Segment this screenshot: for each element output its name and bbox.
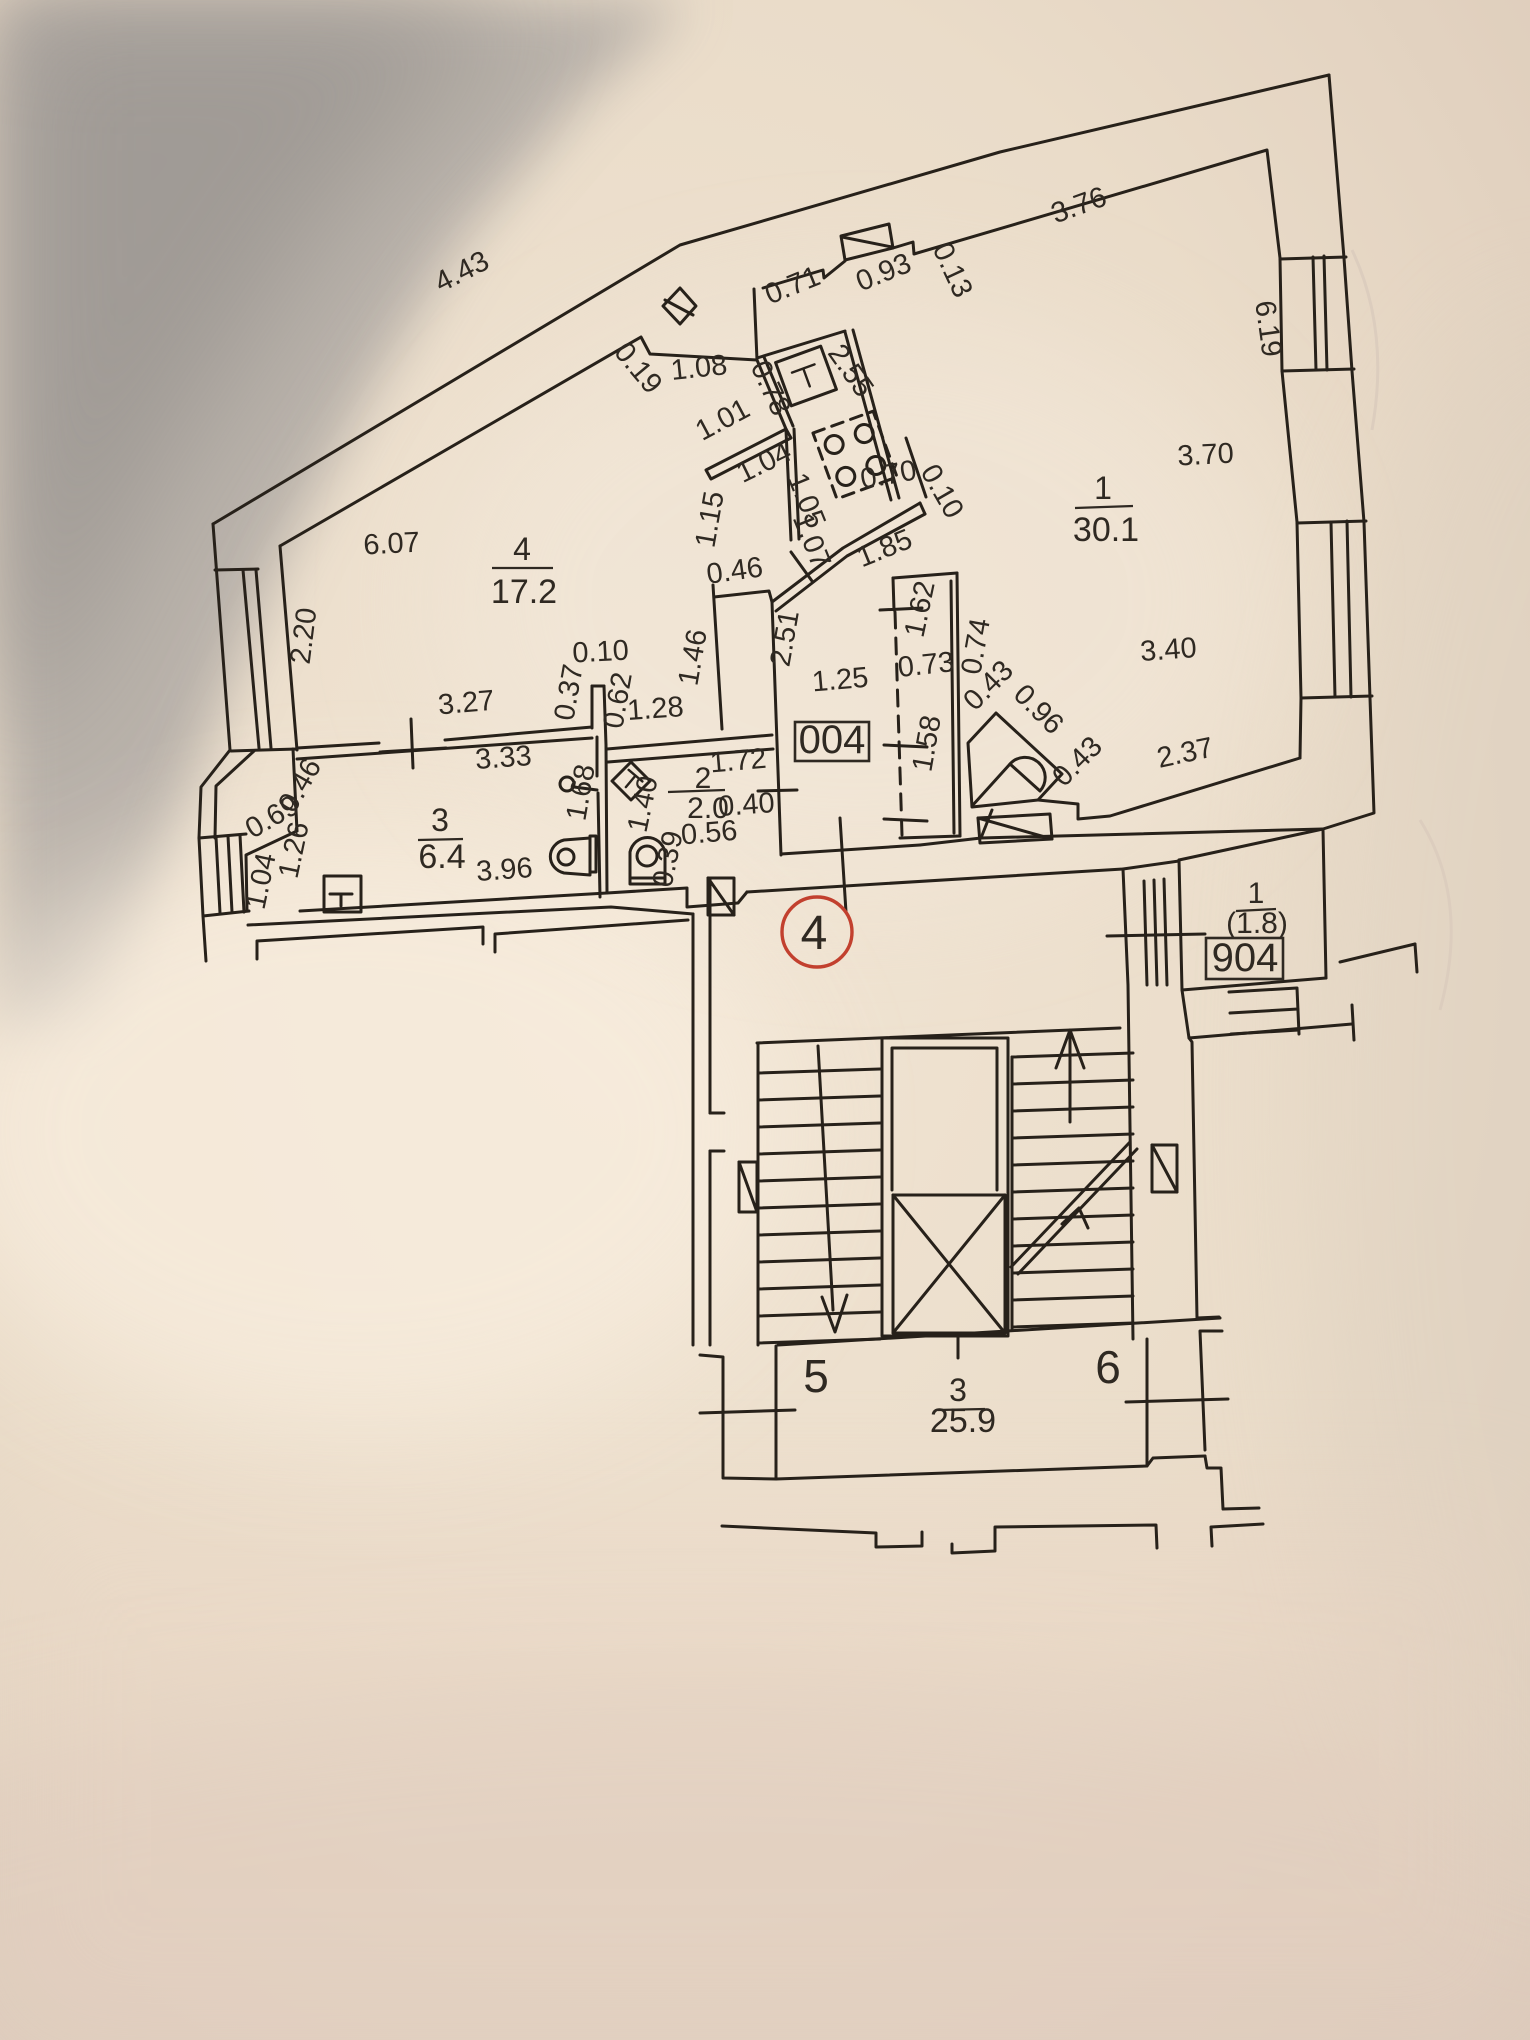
svg-text:6.4: 6.4: [418, 838, 465, 876]
svg-text:904: 904: [1212, 936, 1279, 980]
svg-text:6: 6: [1095, 1341, 1121, 1393]
svg-text:1.72: 1.72: [709, 743, 768, 780]
svg-text:1: 1: [1094, 470, 1112, 506]
svg-text:6.07: 6.07: [363, 527, 421, 562]
svg-text:3: 3: [431, 802, 449, 838]
svg-text:004: 004: [799, 718, 866, 762]
svg-text:30.1: 30.1: [1073, 511, 1139, 549]
svg-text:4: 4: [513, 531, 531, 567]
svg-text:3.40: 3.40: [1139, 632, 1198, 668]
svg-text:2.20: 2.20: [285, 606, 324, 666]
svg-text:3.27: 3.27: [437, 685, 496, 722]
svg-text:4: 4: [801, 907, 828, 960]
svg-text:1: 1: [1248, 877, 1265, 910]
svg-text:1.08: 1.08: [669, 349, 728, 387]
svg-text:3.96: 3.96: [475, 852, 534, 888]
svg-text:17.2: 17.2: [491, 573, 557, 611]
svg-text:3.33: 3.33: [474, 740, 533, 776]
svg-text:5: 5: [803, 1350, 829, 1402]
svg-text:3.70: 3.70: [1177, 438, 1235, 473]
svg-text:0.10: 0.10: [572, 635, 630, 670]
svg-text:1.25: 1.25: [811, 662, 870, 699]
svg-text:25.9: 25.9: [930, 1402, 996, 1440]
svg-text:1.28: 1.28: [626, 691, 685, 727]
svg-text:2.0: 2.0: [687, 792, 729, 825]
svg-text:0.73: 0.73: [896, 646, 955, 684]
